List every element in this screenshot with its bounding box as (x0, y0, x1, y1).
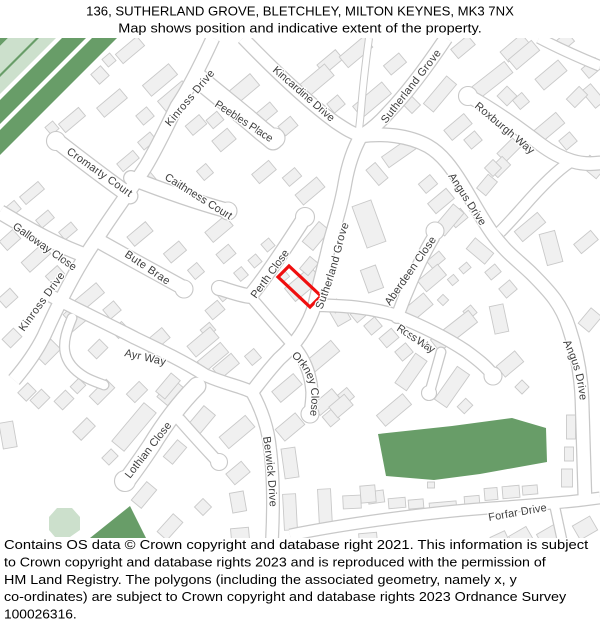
svg-text:Contains OS data © Crown copyr: Contains OS data © Crown copyright and d… (4, 537, 588, 552)
svg-text:HM Land Registry. The polygons: HM Land Registry. The polygons (includin… (4, 572, 517, 586)
svg-text:Map shows position and indicat: Map shows position and indicative extent… (118, 21, 481, 35)
svg-text:co-ordinates) are subject to C: co-ordinates) are subject to Crown copyr… (4, 590, 566, 604)
svg-text:136, SUTHERLAND GROVE, BLETCHL: 136, SUTHERLAND GROVE, BLETCHLEY, MILTON… (86, 4, 514, 19)
svg-text:to Crown copyright and databas: to Crown copyright and database rights 2… (4, 555, 546, 569)
svg-text:100026316.: 100026316. (4, 607, 77, 622)
